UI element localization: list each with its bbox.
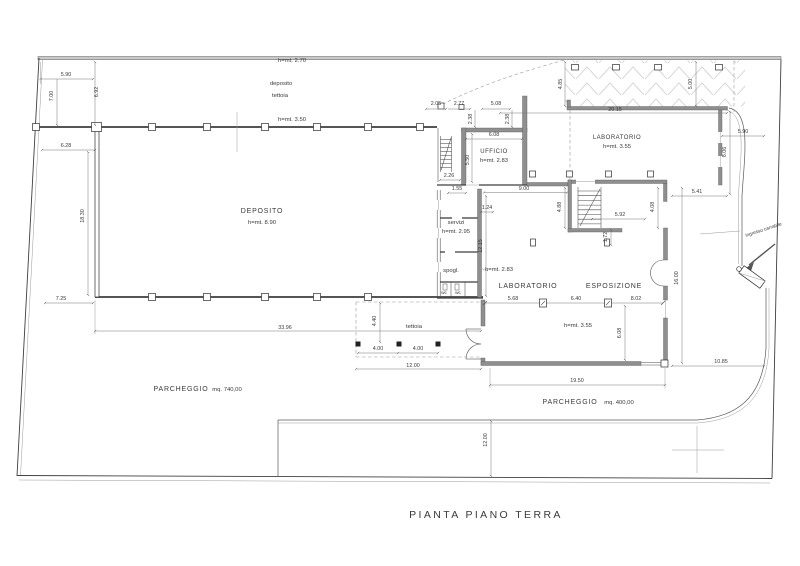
- plan-label: 5.92: [615, 212, 626, 218]
- canopy-column: [356, 342, 361, 347]
- entrance-arrow: [749, 244, 775, 265]
- plan-label: 18.30: [80, 209, 86, 223]
- plan-label: 2.05: [431, 101, 442, 107]
- plan-label: h=mt. 3.55: [564, 323, 593, 329]
- plan-label: 9.00: [519, 186, 530, 192]
- drawing-title: PIANTA PIANO TERRA: [409, 509, 563, 521]
- plan-label: 2.38: [468, 114, 474, 125]
- pillar: [606, 171, 612, 177]
- pillar: [531, 239, 536, 246]
- plan-label: 16.00: [674, 271, 680, 285]
- pillar: [365, 294, 372, 301]
- plan-label: 4.00: [373, 346, 384, 352]
- plan-label: ESPOSIZIONE: [586, 283, 642, 290]
- plan-label: 1.72: [603, 232, 609, 243]
- plan-label: 5.68: [508, 296, 519, 302]
- plan-label: 19.50: [570, 378, 584, 384]
- north-boundary-wall: [38, 57, 781, 60]
- plan-label: h=mt. 8.90: [248, 220, 277, 226]
- plan-label: 12.15: [478, 239, 484, 253]
- plan-label: tettoia: [272, 93, 289, 99]
- fence-post: [613, 65, 620, 71]
- plan-label: 4.85: [558, 79, 564, 90]
- plan-label: servizi: [448, 220, 465, 226]
- pillar: [365, 124, 372, 131]
- plan-label: 5.41: [692, 189, 703, 195]
- plan-label: h=mt. 3.50: [278, 117, 307, 123]
- canopy-column: [436, 342, 441, 347]
- pillar: [567, 171, 573, 177]
- pillar: [204, 124, 211, 131]
- plan-label: PARCHEGGIO: [543, 399, 598, 406]
- plan-label: 33.96: [278, 325, 292, 331]
- pillar: [92, 123, 102, 132]
- plan-label: spogl.: [443, 268, 459, 274]
- expo-south-wall: [481, 362, 641, 366]
- pillar: [314, 124, 321, 131]
- door-swing: [651, 273, 664, 286]
- fence-post: [716, 65, 723, 71]
- plan-label: 1.55: [452, 186, 463, 192]
- wc-fixture: [443, 284, 447, 290]
- plan-label: 12.00: [483, 433, 489, 447]
- plan-label: 6.08: [617, 328, 623, 339]
- pillar: [661, 360, 668, 367]
- pillar: [262, 294, 269, 301]
- plan-label: UFFICIO: [480, 149, 508, 155]
- plan-label: 10.85: [714, 359, 728, 365]
- plan-label: DEPOSITO: [241, 208, 283, 215]
- expo-east-wall: [664, 228, 668, 260]
- plan-label: PARCHEGGIO: [154, 386, 209, 393]
- plan-label: 2.77: [454, 101, 465, 107]
- plan-label: h=mt. 2.95: [442, 229, 471, 235]
- plan-label: 4.08: [650, 202, 656, 213]
- plan-label: h=mt. 2.83: [485, 267, 514, 273]
- plan-label: h=mt. 2.83: [480, 158, 509, 164]
- terrain-line: [437, 59, 568, 107]
- plan-label: 4.40: [372, 316, 378, 327]
- plan-label: 6.92: [94, 87, 100, 98]
- plan-label: mq. 400,00: [604, 400, 634, 406]
- plan-label: 1.24: [482, 205, 493, 211]
- plan-label: 4.00: [413, 346, 424, 352]
- pillar: [262, 124, 269, 131]
- plan-label: 5.50: [465, 155, 471, 166]
- plan-label: 20.15: [608, 107, 622, 113]
- lab-north-wall: [567, 107, 728, 111]
- canopy-column: [397, 342, 402, 347]
- plan-label: deposito: [270, 81, 293, 87]
- pillar: [149, 124, 156, 131]
- pillar: [149, 294, 156, 301]
- west-boundary: [17, 58, 39, 476]
- floor-plan-svg: 5.907.006.926.2818.307.2533.96h=mt. 2.70…: [0, 0, 800, 566]
- plan-label: h=mt. 3.55: [603, 144, 632, 150]
- labels-layer: 5.907.006.926.2818.307.2533.96h=mt. 2.70…: [49, 58, 783, 447]
- plan-label: 12.00: [406, 363, 420, 369]
- pillar: [417, 124, 424, 131]
- plan-label: mq. 740,00: [212, 387, 242, 393]
- plan-label: LABORATORIO: [499, 283, 558, 290]
- plan-label: h=mt. 2.70: [278, 58, 307, 64]
- plan-label: wc: [441, 291, 447, 296]
- ingresso-carrabile: [737, 244, 775, 288]
- plan-label: 5.90: [738, 129, 749, 135]
- plan-label: 5.00: [688, 79, 694, 90]
- east-boundary: [772, 60, 781, 479]
- pillar: [530, 171, 536, 177]
- fence-post: [572, 65, 579, 71]
- pillar: [648, 171, 654, 177]
- plan-label: 6.40: [571, 296, 582, 302]
- plan-label: 6.28: [61, 143, 72, 149]
- door-swing: [651, 260, 664, 273]
- pillar: [314, 294, 321, 301]
- deposito-west-wall: [95, 127, 99, 297]
- plan-label: 7.00: [49, 91, 55, 102]
- south-boundary: [17, 476, 772, 479]
- plan-label: 2.26: [444, 173, 455, 179]
- plan-label: 7.25: [56, 296, 67, 302]
- plan-label: 5.90: [61, 72, 72, 78]
- gate-hinge: [737, 267, 742, 272]
- plan-label: 5.08: [491, 101, 502, 107]
- plan-label: LABORATORIO: [593, 135, 641, 141]
- ufficio-east-wall: [523, 96, 528, 185]
- plan-label: 2.38: [505, 114, 511, 125]
- wc-fixture: [455, 284, 459, 290]
- plan-label: wc: [455, 291, 461, 296]
- hatched-area: [565, 61, 745, 113]
- plan-label: 8.06: [722, 147, 728, 158]
- plan-label: 8.02: [631, 296, 642, 302]
- pillar: [204, 294, 211, 301]
- plan-label: 6.08: [489, 132, 500, 138]
- plan-label: tettoia: [406, 324, 423, 330]
- fence-post: [655, 65, 662, 71]
- pillar: [33, 124, 40, 131]
- deposito-building: [33, 59, 569, 300]
- plan-label: 4.88: [557, 202, 563, 213]
- survey-cross: [672, 426, 724, 473]
- site-boundary: [17, 57, 781, 484]
